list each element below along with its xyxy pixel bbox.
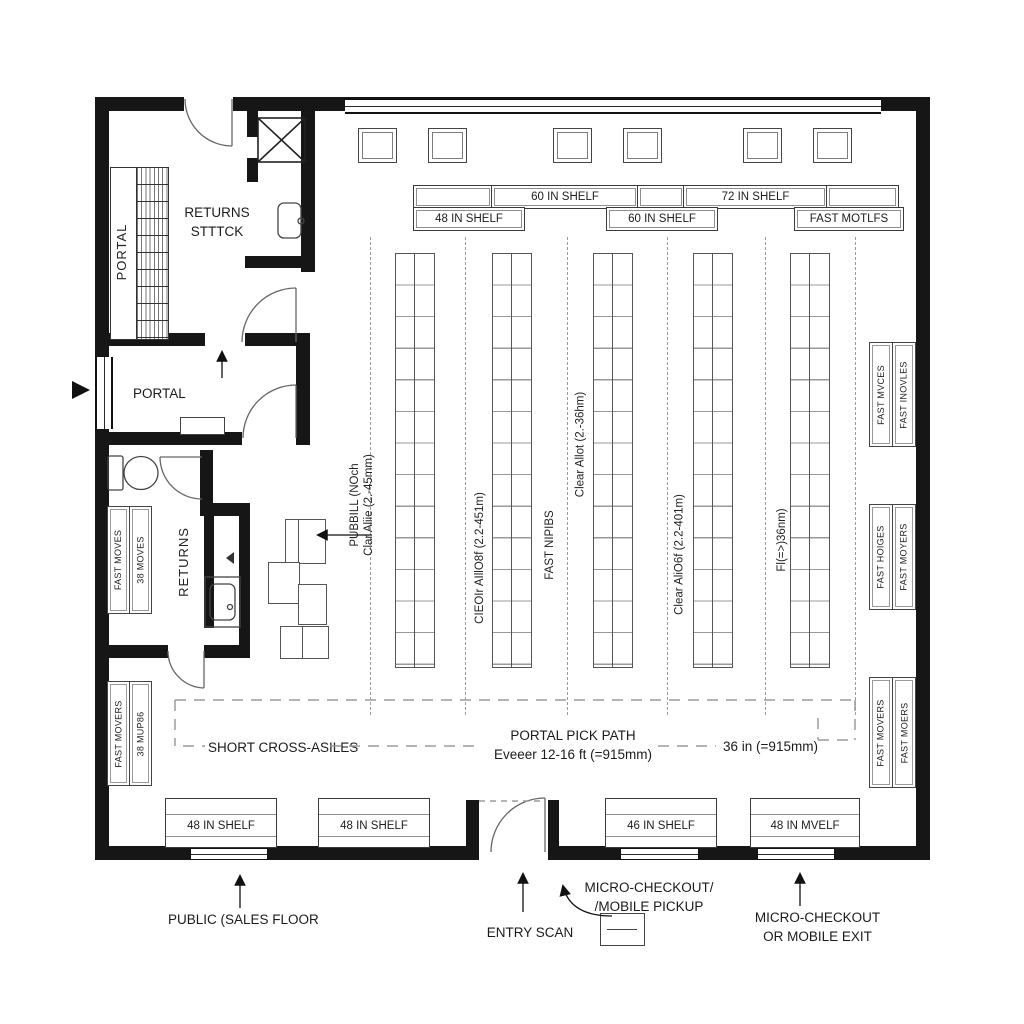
micro-checkout-exit-label: MICRO-CHECKOUT OR MOBILE EXIT <box>745 908 890 946</box>
aisle-dashed-line <box>567 237 568 715</box>
returns-stock-label: RETURNS STTTCK <box>158 203 276 241</box>
right-rack-middle-2: FAST MOYERS <box>892 504 916 610</box>
portal-desk <box>180 417 225 435</box>
entry-post-right <box>548 800 559 860</box>
aisle-width-note: 36 in (=915mm) <box>718 737 823 756</box>
ceiling-fixture-3 <box>553 128 592 163</box>
wall-returns-bottom-right <box>204 645 250 658</box>
entry-door-arc <box>491 798 545 852</box>
window-bottom-3 <box>757 848 835 860</box>
wall-chase-left <box>204 516 214 628</box>
left-rack-lower-1: FAST MOVERS <box>107 681 130 786</box>
ceiling-fixture-5 <box>743 128 782 163</box>
door-arc <box>168 651 204 688</box>
aisle-label-5: Clear AliO6f (2.2-401m) <box>673 475 686 635</box>
wall-portal-top-right <box>245 333 310 346</box>
door-arc <box>243 385 296 438</box>
gondola-run-5 <box>790 253 830 668</box>
tote-4 <box>298 584 327 625</box>
aisle-label-6: Fl(=>)36nm) <box>776 495 788 585</box>
wall-right <box>916 97 930 860</box>
chase-valve-icon <box>226 552 234 564</box>
exterior-portal-arrow-icon <box>72 381 90 399</box>
door-arc <box>160 457 202 499</box>
toilet-tank-icon <box>108 456 123 490</box>
aisle-label-4: Clear Allot (2.-36hm) <box>574 375 587 515</box>
sink-drain-icon <box>228 605 233 610</box>
right-rack-bottom-2: FAST MOERS <box>892 677 916 788</box>
bottom-shelf-1: 48 IN SHELF <box>165 798 277 848</box>
pick-path-label: PORTAL PICK PATH Eveeer 12-16 ft (=915mm… <box>478 726 668 764</box>
right-rack-bottom-1: FAST MOVERS <box>869 677 893 788</box>
gondola-run-2 <box>492 253 532 668</box>
wall-elevator-stub-1 <box>247 111 258 137</box>
floor-plan: PORTAL RETURNS STTTCK PORTAL RETURNS 60 … <box>0 0 1024 1024</box>
ceiling-fixture-1 <box>358 128 397 163</box>
tote-5 <box>280 626 304 659</box>
tote-6 <box>302 626 329 659</box>
aisle-label-2: CIEOIr AIllO8f (2.2-451m) <box>473 483 487 633</box>
portal-rack-label: PORTAL <box>115 207 129 297</box>
right-rack-top-2: FAST INOVLES <box>892 342 916 447</box>
entry-post-left <box>466 800 479 860</box>
short-cross-aisles-label: SHORT CROSS-ASILES <box>208 738 368 757</box>
aisle-dashed-line <box>465 237 466 715</box>
aisle-dashed-line <box>855 237 856 715</box>
wall-returns-bottom-left <box>95 645 168 658</box>
gondola-run-4 <box>693 253 733 668</box>
window-portal-left <box>95 357 113 429</box>
top-shelf-box: 60 IN SHELF <box>491 185 639 209</box>
wall-chase-right <box>239 516 250 658</box>
gondola-run-1 <box>395 253 435 668</box>
wall-sink-icon <box>278 203 301 238</box>
window-top <box>345 98 881 114</box>
right-rack-middle-1: FAST HOIGES <box>869 504 893 610</box>
returns-stock-rack <box>136 167 169 340</box>
wall-backroom-right <box>301 97 315 272</box>
top-shelf-box <box>413 185 493 209</box>
aisle-dashed-line <box>765 237 766 715</box>
wall-elevator-stub-2 <box>247 158 258 182</box>
wall-bath-bottom <box>200 503 250 516</box>
elevator-shaft-icon <box>258 118 305 162</box>
top-shelf-box <box>826 185 899 209</box>
portal-room-label: PORTAL <box>133 384 195 403</box>
public-sales-floor-label: PUBLIC (SALES FLOOR <box>168 910 318 929</box>
left-rack-upper-2: 38 MOVES <box>129 506 152 614</box>
left-rack-lower-2: 38 MUP86 <box>129 681 152 786</box>
tote-3 <box>268 562 300 604</box>
right-rack-top-1: FAST MVCES <box>869 342 893 447</box>
top-shelf-box: 48 IN SHELF <box>413 207 525 231</box>
toilet-bowl-icon <box>124 457 158 490</box>
ceiling-fixture-4 <box>623 128 662 163</box>
bottom-shelf-4: 48 IN MVELF <box>750 798 860 848</box>
aisle-label-3: FAST NIPIBS <box>544 505 556 585</box>
entry-scan-label: ENTRY SCAN <box>470 923 590 942</box>
ceiling-fixture-2 <box>428 128 467 163</box>
top-shelf-box: FAST MOTLFS <box>794 207 904 231</box>
left-rack-upper-1: FAST MOVES <box>107 506 130 614</box>
top-shelf-box: 72 IN SHELF <box>683 185 828 209</box>
aisle-dashed-line <box>667 237 668 715</box>
window-bottom-1 <box>190 848 268 860</box>
door-opening-entry <box>479 846 548 860</box>
top-shelf-box <box>637 185 685 209</box>
window-bottom-2 <box>620 848 699 860</box>
wall-portal-right <box>296 346 310 445</box>
micro-checkout-pickup-label: MICRO-CHECKOUT/ /MOBILE PICKUP <box>573 878 725 916</box>
micro-checkout-kiosk <box>600 913 645 946</box>
top-shelf-box: 60 IN SHELF <box>606 207 718 231</box>
tote-2 <box>298 519 326 564</box>
returns-room-label: RETURNS <box>177 512 191 612</box>
door-opening-top <box>184 97 233 111</box>
wall-returns-stock-bottom <box>245 256 307 268</box>
bottom-shelf-3: 46 IN SHELF <box>605 798 717 848</box>
ceiling-fixture-6 <box>813 128 852 163</box>
bottom-shelf-2: 48 IN SHELF <box>318 798 430 848</box>
aisle-label-1: PUBBILL (NOch Clar Aliie (2.-45mm) <box>347 420 377 590</box>
gondola-run-3 <box>593 253 633 668</box>
